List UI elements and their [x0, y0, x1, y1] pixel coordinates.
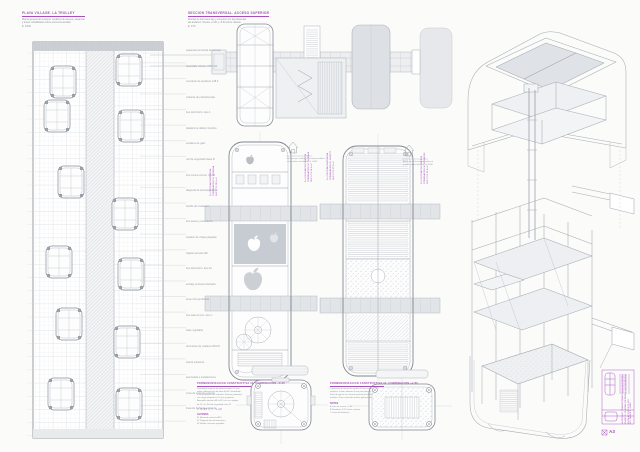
level-strip-2: N +5.60 PLANTA CUBIERTACOMBINACION 02. T… — [305, 120, 314, 182]
middle-title: SECCION TRANSVERSAL. ACCESO SUPERIOR — [188, 11, 269, 17]
title-block-left: PLAYA VILLAGE. LA TROLLEY Planta general… — [22, 11, 85, 28]
leader-label: durmiente de madera 200x70 — [186, 345, 230, 361]
detail-left-symbols: ◇ 0.45 ◇ ▷ 1.20 — [197, 408, 251, 411]
leader-label: plataforma tablero fenolico — [186, 127, 230, 143]
leader-label: diagonal de arriostramiento — [186, 189, 230, 205]
leader-label: bus aseos y lavanderia — [186, 220, 230, 236]
leader-label: anclaje puntual a fachada — [186, 283, 230, 299]
detail-left-body: Plataforma superior de tablero fenolico … — [197, 388, 251, 407]
leader-labels: pasarela perimetral de accesobarandilla … — [186, 49, 230, 423]
middle-scale: E: 1/75 — [188, 25, 269, 28]
leader-label: bus cocina comun. tipo B — [186, 174, 230, 190]
leader-label: base regulable — [186, 329, 230, 345]
level-strip-4: N +5.60 PLANTA CUBIERTACOMBINACION 04. S… — [421, 122, 430, 184]
titleblock-text: LA TROLLEY. TRANSFORMACION DE AUTOBUSESP… — [622, 366, 633, 424]
detail-right-body: Pavimento de tarima de madera 28 mm sobr… — [330, 388, 384, 401]
detail-right-subheading: NOTAS — [330, 402, 384, 405]
leader-label: cubierta de policarbonato — [186, 96, 230, 112]
leader-label: red de seguridad clase B — [186, 158, 230, 174]
leader-label: husillo de nivelacion — [186, 205, 230, 221]
detail-notes-right: PORMENORIZACION CONSTRUCTIVA 02. COMBINA… — [330, 382, 384, 415]
exploded-axonometric — [468, 32, 634, 439]
leader-label: canalon de chapa plegada — [186, 236, 230, 252]
leader-label: bus dormitorio. tipo A2 — [186, 267, 230, 283]
leader-label: lona microperforada — [186, 298, 230, 314]
left-title: PLAYA VILLAGE. LA TROLLEY — [22, 11, 85, 17]
leader-label: montante de andamio o48.3 — [186, 80, 230, 96]
detail-right-heading: PORMENORIZACION CONSTRUCTIVA 02. COMBINA… — [330, 382, 384, 387]
upper-access-plan — [212, 24, 452, 126]
left-scale: E: 1/200 — [22, 25, 85, 28]
level-strip-1: N +2.80 PLANTA PRIMERACOMBINACION 01. VI… — [210, 134, 219, 196]
level-strip-3: N +2.80 PLANTA PRIMERACOMBINACION 03. HU… — [327, 118, 336, 180]
sheet-format-mark: A3 — [609, 429, 615, 434]
sheet-linework — [0, 0, 640, 452]
detail-notes-left: PORMENORIZACION CONSTRUCTIVA 01. COMBINA… — [197, 382, 251, 426]
detail-left-heading: PORMENORIZACION CONSTRUCTIVA 01. COMBINA… — [197, 382, 251, 387]
house-caption-right: Apertura de lucernario sobre elpasillo c… — [403, 161, 433, 167]
title-block-middle: SECCION TRANSVERSAL. ACCESO SUPERIOR Pla… — [188, 11, 269, 28]
detail-left-legend: 01 Montante vertical o48.302 Diagonal de… — [197, 417, 251, 426]
detail-left-subheading: LEYENDA — [197, 413, 251, 416]
leader-label: pasarela perimetral de acceso — [186, 49, 230, 65]
detail-right-notes: A Cota de acceso +2.80B Pendiente 1,5% h… — [330, 406, 384, 415]
leader-label: bajante pluvial o90 — [186, 252, 230, 268]
drawing-sheet: PLAYA VILLAGE. LA TROLLEY Planta general… — [0, 0, 640, 452]
leader-label: solera existente — [186, 361, 230, 377]
leader-label: bus sala comun. tipo C — [186, 314, 230, 330]
leader-label: bus dormitorio. tipo A — [186, 111, 230, 127]
house-caption-left: Acceso por cubierta. Pasarela metalicaco… — [287, 158, 325, 164]
scaffold-plan — [27, 42, 212, 438]
leader-label: escalera de gato — [186, 142, 230, 158]
leader-label: barandilla tubular o48 h110 — [186, 65, 230, 81]
